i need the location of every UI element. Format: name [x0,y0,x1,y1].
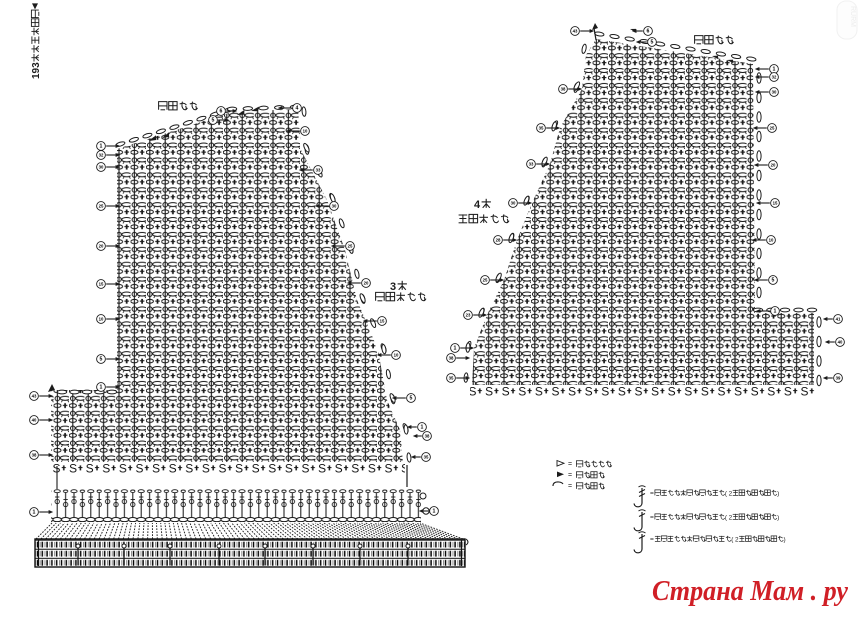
svg-text:=: = [568,472,572,479]
svg-text:=: = [568,461,572,468]
svg-text:6: 6 [220,109,223,115]
svg-text:1: 1 [100,385,103,391]
svg-text:35: 35 [449,376,454,381]
svg-text:Страна Мам . ру: Страна Мам . ру [652,575,848,607]
svg-text:38: 38 [561,87,566,92]
svg-text:=: = [650,490,654,497]
svg-text:20: 20 [99,244,104,249]
svg-text:3: 3 [390,281,396,293]
svg-text:5: 5 [100,357,103,363]
svg-text:=: = [568,483,572,490]
svg-text:40: 40 [838,340,843,345]
svg-text:10: 10 [303,129,308,134]
svg-text:41: 41 [836,317,841,322]
svg-text:15: 15 [99,282,104,287]
svg-text:5: 5 [410,396,413,402]
svg-text:25: 25 [483,278,488,283]
svg-text:23: 23 [466,313,471,318]
svg-text:38: 38 [425,434,430,439]
svg-text:2: 2 [729,491,733,498]
svg-text:38: 38 [32,453,37,458]
svg-text:38: 38 [449,356,454,361]
svg-text:39: 39 [836,376,841,381]
svg-text:5: 5 [212,118,215,124]
svg-text:1: 1 [454,346,457,352]
svg-text:1: 1 [421,425,424,431]
svg-text:1: 1 [773,67,776,73]
svg-text:): ) [777,491,779,498]
svg-text:): ) [784,537,786,544]
svg-text:25: 25 [99,204,104,209]
svg-text:32: 32 [772,75,777,80]
svg-text:25: 25 [348,244,353,249]
svg-text:35: 35 [539,126,544,131]
svg-text:4: 4 [474,199,481,211]
svg-text:43: 43 [32,394,37,399]
svg-text:5: 5 [772,278,775,284]
svg-text:33: 33 [316,168,321,173]
svg-text:15: 15 [773,201,778,206]
svg-text:2: 2 [735,537,739,544]
svg-text:6: 6 [647,29,650,35]
svg-text:30: 30 [99,165,104,170]
svg-text:193: 193 [31,62,42,79]
svg-text:35: 35 [424,455,429,460]
svg-text:30: 30 [772,90,777,95]
svg-text:=: = [650,536,654,543]
svg-text:40: 40 [32,418,37,423]
svg-text:RURM: RURM [849,6,856,27]
svg-text:33: 33 [529,162,534,167]
svg-text:=: = [650,514,654,521]
svg-text:32: 32 [99,153,104,158]
svg-text:): ) [777,515,779,522]
svg-text:1: 1 [433,509,436,515]
svg-text:15: 15 [380,319,385,324]
svg-text:30: 30 [511,201,516,206]
svg-text:10: 10 [769,238,774,243]
svg-text:10: 10 [394,353,399,358]
svg-text:4: 4 [296,106,299,112]
svg-text:5: 5 [651,40,654,46]
svg-text:25: 25 [770,126,775,131]
svg-text:1: 1 [774,309,777,315]
svg-text:28: 28 [496,238,501,243]
svg-text:10: 10 [99,317,104,322]
svg-text:30: 30 [332,204,337,209]
svg-text:1: 1 [100,144,103,150]
svg-text:43: 43 [573,29,578,34]
svg-text:1: 1 [33,510,36,516]
svg-text:2: 2 [729,515,733,522]
svg-text:20: 20 [771,163,776,168]
svg-text:20: 20 [364,281,369,286]
